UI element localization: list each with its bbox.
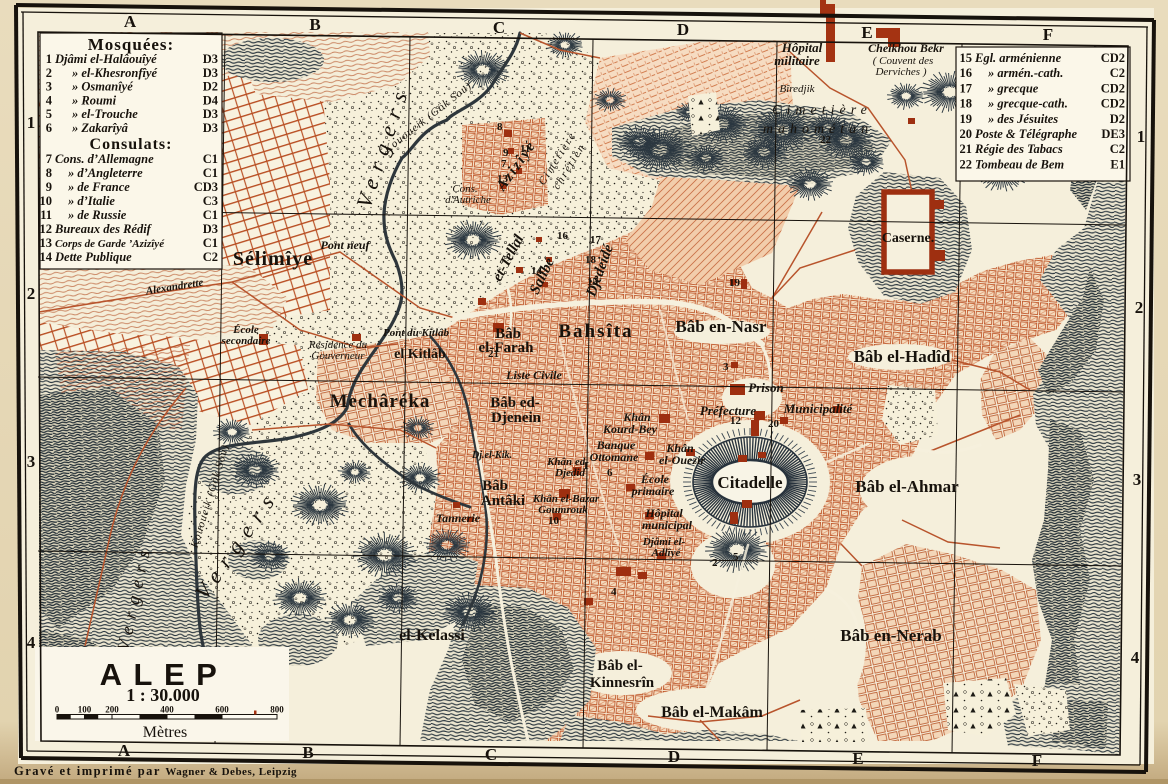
svg-text:Dj.el-Kik.: Dj.el-Kik.: [471, 450, 512, 461]
svg-text:Sélimîye: Sélimîye: [233, 248, 313, 270]
svg-text:E: E: [852, 749, 863, 768]
svg-text:18: 18: [960, 97, 973, 111]
svg-text:19: 19: [729, 277, 741, 289]
svg-text:Djedid: Djedid: [554, 467, 585, 479]
svg-text:Djâmi el-Halâouîyé: Djâmi el-Halâouîyé: [54, 52, 157, 66]
svg-text:Corps de Garde ’Azizîyé: Corps de Garde ’Azizîyé: [55, 238, 165, 250]
svg-text:600: 600: [215, 705, 229, 715]
svg-text:0: 0: [55, 705, 60, 715]
svg-text:21: 21: [488, 348, 499, 360]
svg-text:E1: E1: [1110, 157, 1125, 171]
svg-text:CD2: CD2: [1101, 97, 1125, 111]
svg-text:Antâki: Antâki: [481, 493, 525, 509]
svg-text:16: 16: [960, 66, 973, 80]
svg-text:C: C: [493, 18, 505, 37]
svg-text:400: 400: [160, 705, 174, 715]
svg-text:800: 800: [270, 705, 284, 715]
svg-text:200: 200: [105, 705, 119, 715]
svg-text:Pont du Kitlâb: Pont du Kitlâb: [383, 327, 450, 339]
svg-text:Bâb el-: Bâb el-: [597, 658, 642, 674]
svg-text:D3: D3: [203, 222, 218, 236]
svg-text:» d’Italie: » d’Italie: [67, 194, 115, 208]
svg-text:22: 22: [820, 134, 832, 146]
svg-text:Gravé et imprimé par Wagner &: Gravé et imprimé par Wagner & Debes, Lei…: [14, 764, 297, 778]
svg-text:B: B: [302, 743, 313, 762]
svg-text:Derviches ): Derviches ): [874, 66, 926, 78]
svg-text:Gouverneur: Gouverneur: [311, 350, 365, 362]
svg-text:10: 10: [40, 194, 53, 208]
svg-text:mahométan: mahométan: [763, 122, 873, 137]
svg-text:Bâb el-Hadîd: Bâb el-Hadîd: [854, 347, 951, 366]
svg-text:17: 17: [960, 81, 973, 95]
svg-text:Ottomane: Ottomane: [590, 450, 639, 464]
svg-text:» d’Angleterre: » d’Angleterre: [67, 166, 143, 180]
svg-text:Poste & Télégraphe: Poste & Télégraphe: [975, 127, 1078, 141]
svg-text:secondaire: secondaire: [221, 335, 271, 347]
svg-text:8: 8: [46, 166, 52, 180]
svg-text:6: 6: [607, 467, 613, 479]
svg-text:3: 3: [723, 361, 729, 373]
svg-text:Bâb el-Ahmar: Bâb el-Ahmar: [855, 477, 959, 496]
svg-text:Bâb en-Nerab: Bâb en-Nerab: [840, 626, 942, 645]
svg-text:Cimetière: Cimetière: [772, 103, 872, 118]
svg-text:Liste Civile: Liste Civile: [505, 368, 562, 382]
svg-text:Régie des Tabacs: Régie des Tabacs: [974, 142, 1063, 156]
svg-text:Kourd-Bey: Kourd-Bey: [602, 422, 658, 436]
svg-text:C1: C1: [203, 152, 218, 166]
svg-text:el-Kelassi: el-Kelassi: [399, 627, 465, 644]
svg-text:CD2: CD2: [1101, 81, 1125, 95]
svg-text:» el-Khesronfîyé: » el-Khesronfîyé: [71, 66, 158, 80]
svg-text:1 : 30.000: 1 : 30.000: [126, 685, 200, 705]
svg-text:D3: D3: [203, 66, 218, 80]
svg-text:1: 1: [46, 52, 52, 66]
svg-text:15: 15: [587, 276, 599, 288]
svg-text:1: 1: [27, 113, 36, 132]
svg-text:Bâb: Bâb: [482, 478, 508, 494]
svg-text:Prison: Prison: [748, 380, 783, 395]
svg-text:D3: D3: [203, 52, 218, 66]
svg-text:Bureaux des Rédif: Bureaux des Rédif: [54, 222, 153, 236]
svg-text:Mechâréka: Mechâréka: [330, 391, 431, 412]
svg-text:1: 1: [1137, 127, 1146, 146]
svg-text:19: 19: [960, 112, 973, 126]
svg-text:E: E: [861, 23, 872, 42]
svg-text:20: 20: [960, 127, 973, 141]
svg-text:20: 20: [768, 418, 780, 430]
svg-text:Tombeau de Bem: Tombeau de Bem: [975, 157, 1064, 171]
svg-text:13: 13: [40, 236, 53, 250]
svg-text:el-Farah: el-Farah: [479, 340, 535, 356]
svg-text:DE3: DE3: [1101, 127, 1125, 141]
svg-text:Bâb ed-: Bâb ed-: [490, 395, 540, 411]
svg-text:Citadelle: Citadelle: [717, 473, 783, 492]
svg-text:14: 14: [40, 250, 53, 264]
svg-text:17: 17: [590, 234, 602, 246]
svg-text:Adlîyé: Adlîyé: [651, 547, 682, 559]
svg-text:Bîredjik: Bîredjik: [779, 83, 815, 95]
svg-text:Kinnesrîn: Kinnesrîn: [590, 675, 655, 691]
svg-text:D2: D2: [203, 80, 218, 94]
svg-text:13: 13: [497, 173, 509, 185]
svg-text:CD2: CD2: [1101, 51, 1125, 65]
svg-text:3: 3: [27, 452, 36, 471]
svg-text:Cons. d’Allemagne: Cons. d’Allemagne: [55, 152, 154, 166]
svg-text:D2: D2: [1110, 112, 1125, 126]
svg-text:d'Autriche: d'Autriche: [445, 194, 491, 206]
svg-text:» armén.-cath.: » armén.-cath.: [987, 66, 1063, 80]
svg-text:Goumrouk: Goumrouk: [538, 504, 588, 516]
svg-text:» Roumi: » Roumi: [71, 93, 117, 107]
svg-text:7: 7: [46, 152, 52, 166]
svg-text:el Kitlâb: el Kitlâb: [394, 347, 446, 362]
svg-text:8: 8: [497, 121, 503, 133]
svg-text:Egl. arménienne: Egl. arménienne: [974, 51, 1062, 65]
svg-text:Consulats:: Consulats:: [90, 136, 173, 153]
svg-text:7: 7: [501, 158, 507, 170]
svg-text:B: B: [309, 15, 320, 34]
svg-text:12: 12: [40, 222, 53, 236]
svg-text:D3: D3: [203, 107, 218, 121]
svg-text:F: F: [1043, 25, 1053, 44]
svg-text:F: F: [1032, 751, 1042, 770]
svg-text:C1: C1: [203, 236, 218, 250]
svg-text:18: 18: [585, 254, 597, 266]
svg-text:Tannerie: Tannerie: [436, 511, 481, 525]
svg-text:municipal: municipal: [642, 518, 693, 532]
svg-text:Bahsîta: Bahsîta: [558, 321, 633, 342]
svg-text:4: 4: [27, 633, 36, 652]
svg-text:» el-Trouche: » el-Trouche: [71, 107, 138, 121]
svg-text:15: 15: [960, 51, 973, 65]
svg-text:11: 11: [40, 208, 52, 222]
svg-text:Djenein: Djenein: [491, 410, 542, 426]
svg-text:D3: D3: [203, 121, 218, 135]
svg-text:Bâb el-Makâm: Bâb el-Makâm: [661, 704, 763, 721]
svg-text:22: 22: [960, 157, 973, 171]
svg-text:militaire: militaire: [774, 53, 820, 68]
svg-text:2: 2: [46, 66, 52, 80]
svg-text:2: 2: [27, 284, 36, 303]
svg-text:» de Russie: » de Russie: [67, 208, 127, 222]
svg-text:4: 4: [1131, 648, 1140, 667]
svg-text:1: 1: [583, 460, 589, 472]
svg-text:16: 16: [557, 230, 569, 242]
svg-text:D4: D4: [203, 93, 219, 107]
svg-text:100: 100: [78, 705, 92, 715]
svg-text:A: A: [118, 741, 131, 760]
svg-text:» de France: » de France: [67, 180, 130, 194]
svg-text:» grecque: » grecque: [987, 81, 1039, 95]
svg-text:Dette Publique: Dette Publique: [54, 250, 132, 264]
svg-text:A: A: [124, 12, 137, 31]
svg-text:5: 5: [733, 551, 739, 563]
svg-text:» des Jésuites: » des Jésuites: [987, 112, 1058, 126]
svg-text:Bâb en-Nasr: Bâb en-Nasr: [675, 317, 767, 336]
svg-text:10: 10: [548, 515, 560, 527]
svg-text:» Zakarîyâ: » Zakarîyâ: [71, 121, 128, 135]
svg-text:CD3: CD3: [194, 180, 218, 194]
svg-text:Municipalité: Municipalité: [783, 401, 854, 416]
svg-text:4: 4: [611, 586, 617, 598]
svg-text:21: 21: [960, 142, 973, 156]
svg-text:D: D: [668, 747, 680, 766]
svg-text:Préfecture: Préfecture: [700, 403, 757, 418]
svg-text:3: 3: [1133, 470, 1142, 489]
svg-text:12: 12: [730, 415, 742, 427]
svg-text:5: 5: [46, 107, 52, 121]
svg-text:C1: C1: [203, 166, 218, 180]
svg-text:2: 2: [712, 557, 718, 569]
svg-text:C2: C2: [1110, 142, 1125, 156]
svg-text:primaire: primaire: [631, 484, 675, 498]
svg-text:» grecque-cath.: » grecque-cath.: [987, 97, 1068, 111]
svg-text:C: C: [485, 745, 497, 764]
svg-text:C2: C2: [203, 250, 218, 264]
svg-text:el-Ouezir: el-Ouezir: [659, 453, 705, 467]
svg-text:» Osmanîyé: » Osmanîyé: [71, 80, 133, 94]
svg-text:3: 3: [46, 80, 52, 94]
svg-text:Mètres: Mètres: [143, 724, 187, 741]
svg-text:C2: C2: [1110, 66, 1125, 80]
svg-text:Pont neuf: Pont neuf: [320, 238, 370, 252]
svg-text:C3: C3: [203, 194, 218, 208]
svg-text:4: 4: [46, 93, 53, 107]
svg-text:C1: C1: [203, 208, 218, 222]
svg-text:9: 9: [46, 180, 52, 194]
svg-text:6: 6: [46, 121, 52, 135]
svg-text:2: 2: [1135, 298, 1144, 317]
svg-text:D: D: [677, 20, 689, 39]
svg-text:11: 11: [520, 143, 530, 155]
svg-text:14: 14: [531, 265, 543, 277]
svg-text:Caserne.: Caserne.: [882, 231, 935, 246]
